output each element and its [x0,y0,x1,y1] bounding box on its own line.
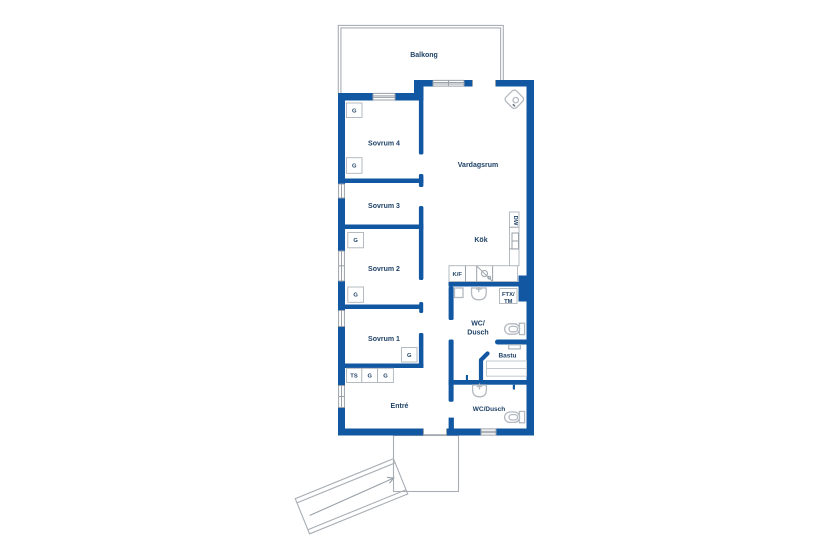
svg-text:G: G [353,238,358,244]
svg-text:Sovrum 4: Sovrum 4 [368,140,400,147]
svg-text:TS: TS [350,374,358,380]
svg-text:WC/Dusch: WC/Dusch [473,406,506,413]
svg-text:Vardagsrum: Vardagsrum [458,162,498,169]
svg-text:Sovrum 3: Sovrum 3 [368,203,400,210]
svg-text:DW: DW [512,216,518,226]
svg-text:K/F: K/F [453,272,463,278]
svg-text:G: G [352,108,357,114]
svg-text:TM: TM [504,299,513,305]
svg-text:Sovrum 1: Sovrum 1 [368,336,400,343]
svg-text:Dusch: Dusch [467,329,488,336]
svg-text:Sovrum 2: Sovrum 2 [368,266,400,273]
svg-text:G: G [407,353,412,359]
svg-text:G: G [367,374,372,380]
svg-text:G: G [383,374,388,380]
svg-text:G: G [353,293,358,299]
svg-text:FTX/: FTX/ [502,292,515,298]
svg-text:Balkong: Balkong [410,52,438,59]
svg-text:Bastu: Bastu [498,353,516,360]
svg-text:Kök: Kök [474,237,487,244]
svg-text:WC/: WC/ [471,320,485,327]
svg-text:Entré: Entré [391,403,409,410]
svg-text:G: G [352,164,357,170]
